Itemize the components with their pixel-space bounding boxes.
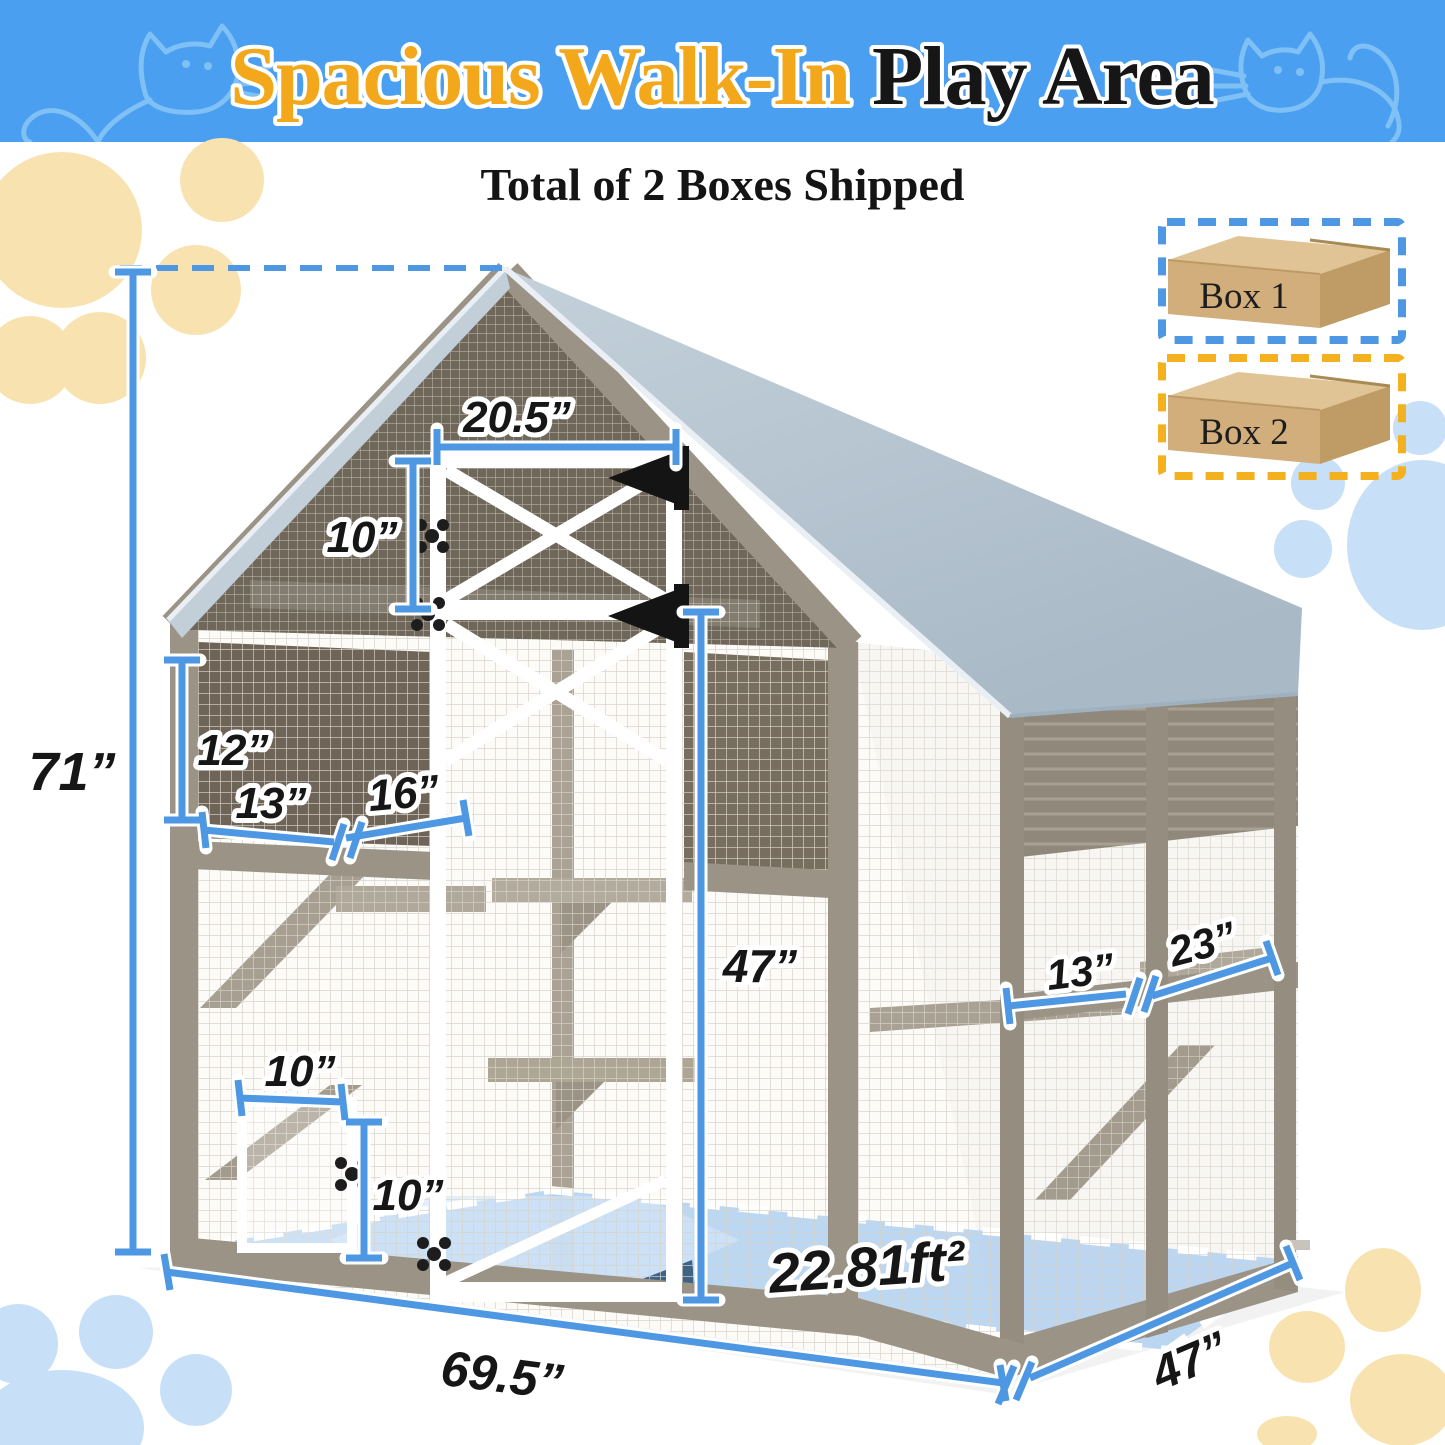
dim-top-door-height: 10”	[327, 513, 398, 562]
dim-cabin-height: 12”	[198, 726, 269, 775]
dim-pet-door-height: 10”	[373, 1171, 444, 1220]
box1-label: Box 1	[1199, 276, 1288, 317]
dim-top-door-width: 20.5”	[462, 393, 571, 442]
shipping-box-2: Box 2	[1162, 358, 1402, 476]
dim-walk-door-height: 47”	[722, 940, 797, 992]
dim-overall-height: 71”	[28, 742, 115, 802]
paw-decoration-bottom-left	[0, 1295, 232, 1445]
dim-pet-door-width: 10”	[265, 1047, 336, 1096]
dim-overall-width: 69.5”	[438, 1340, 566, 1410]
dim-cabin-width: 13”	[236, 779, 307, 828]
product-infographic: Spacious Walk-InPlay Area Total of 2 Box…	[0, 0, 1445, 1445]
dim-right-shelf: 13”	[1044, 944, 1117, 999]
shipping-box-1: Box 1	[1162, 222, 1402, 340]
dim-cabin-width2: 16”	[366, 766, 441, 821]
box2-label: Box 2	[1199, 412, 1288, 453]
